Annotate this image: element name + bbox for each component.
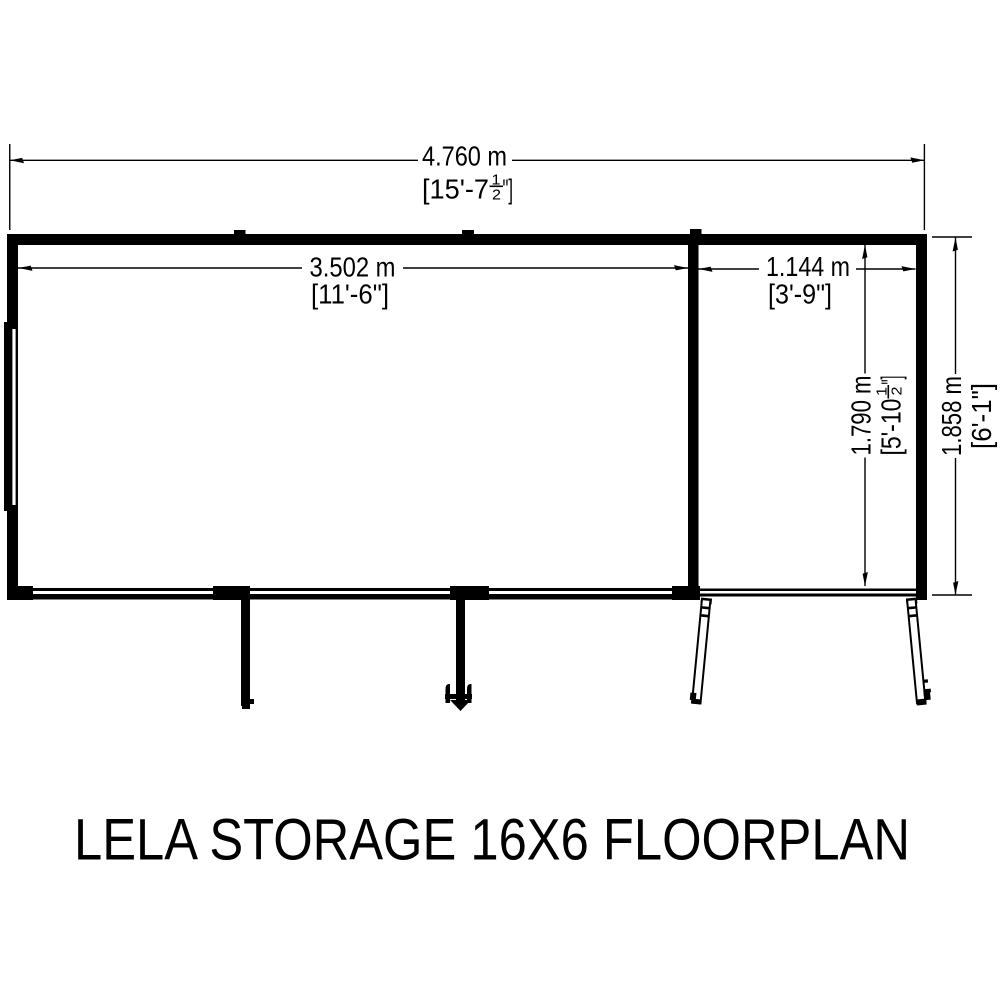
svg-text:[6'-1"]: [6'-1"] bbox=[966, 383, 997, 449]
svg-text:[3'-9"]: [3'-9"] bbox=[768, 279, 832, 310]
svg-text:"]: "] bbox=[503, 174, 514, 205]
svg-text:LELA STORAGE 16X6 FLOORPLAN: LELA STORAGE 16X6 FLOORPLAN bbox=[74, 808, 910, 873]
svg-text:2: 2 bbox=[889, 387, 906, 396]
svg-text:4.760 m: 4.760 m bbox=[422, 141, 507, 172]
svg-text:1.858 m: 1.858 m bbox=[936, 376, 967, 456]
svg-text:[15'-7: [15'-7 bbox=[422, 174, 489, 205]
svg-text:[11'-6"]: [11'-6"] bbox=[311, 279, 389, 310]
svg-text:"]: "] bbox=[876, 376, 907, 385]
svg-text:1.790 m: 1.790 m bbox=[846, 376, 877, 456]
svg-text:1.144 m: 1.144 m bbox=[766, 251, 850, 282]
svg-text:2: 2 bbox=[492, 187, 501, 204]
svg-text:[5'-10: [5'-10 bbox=[876, 399, 907, 456]
